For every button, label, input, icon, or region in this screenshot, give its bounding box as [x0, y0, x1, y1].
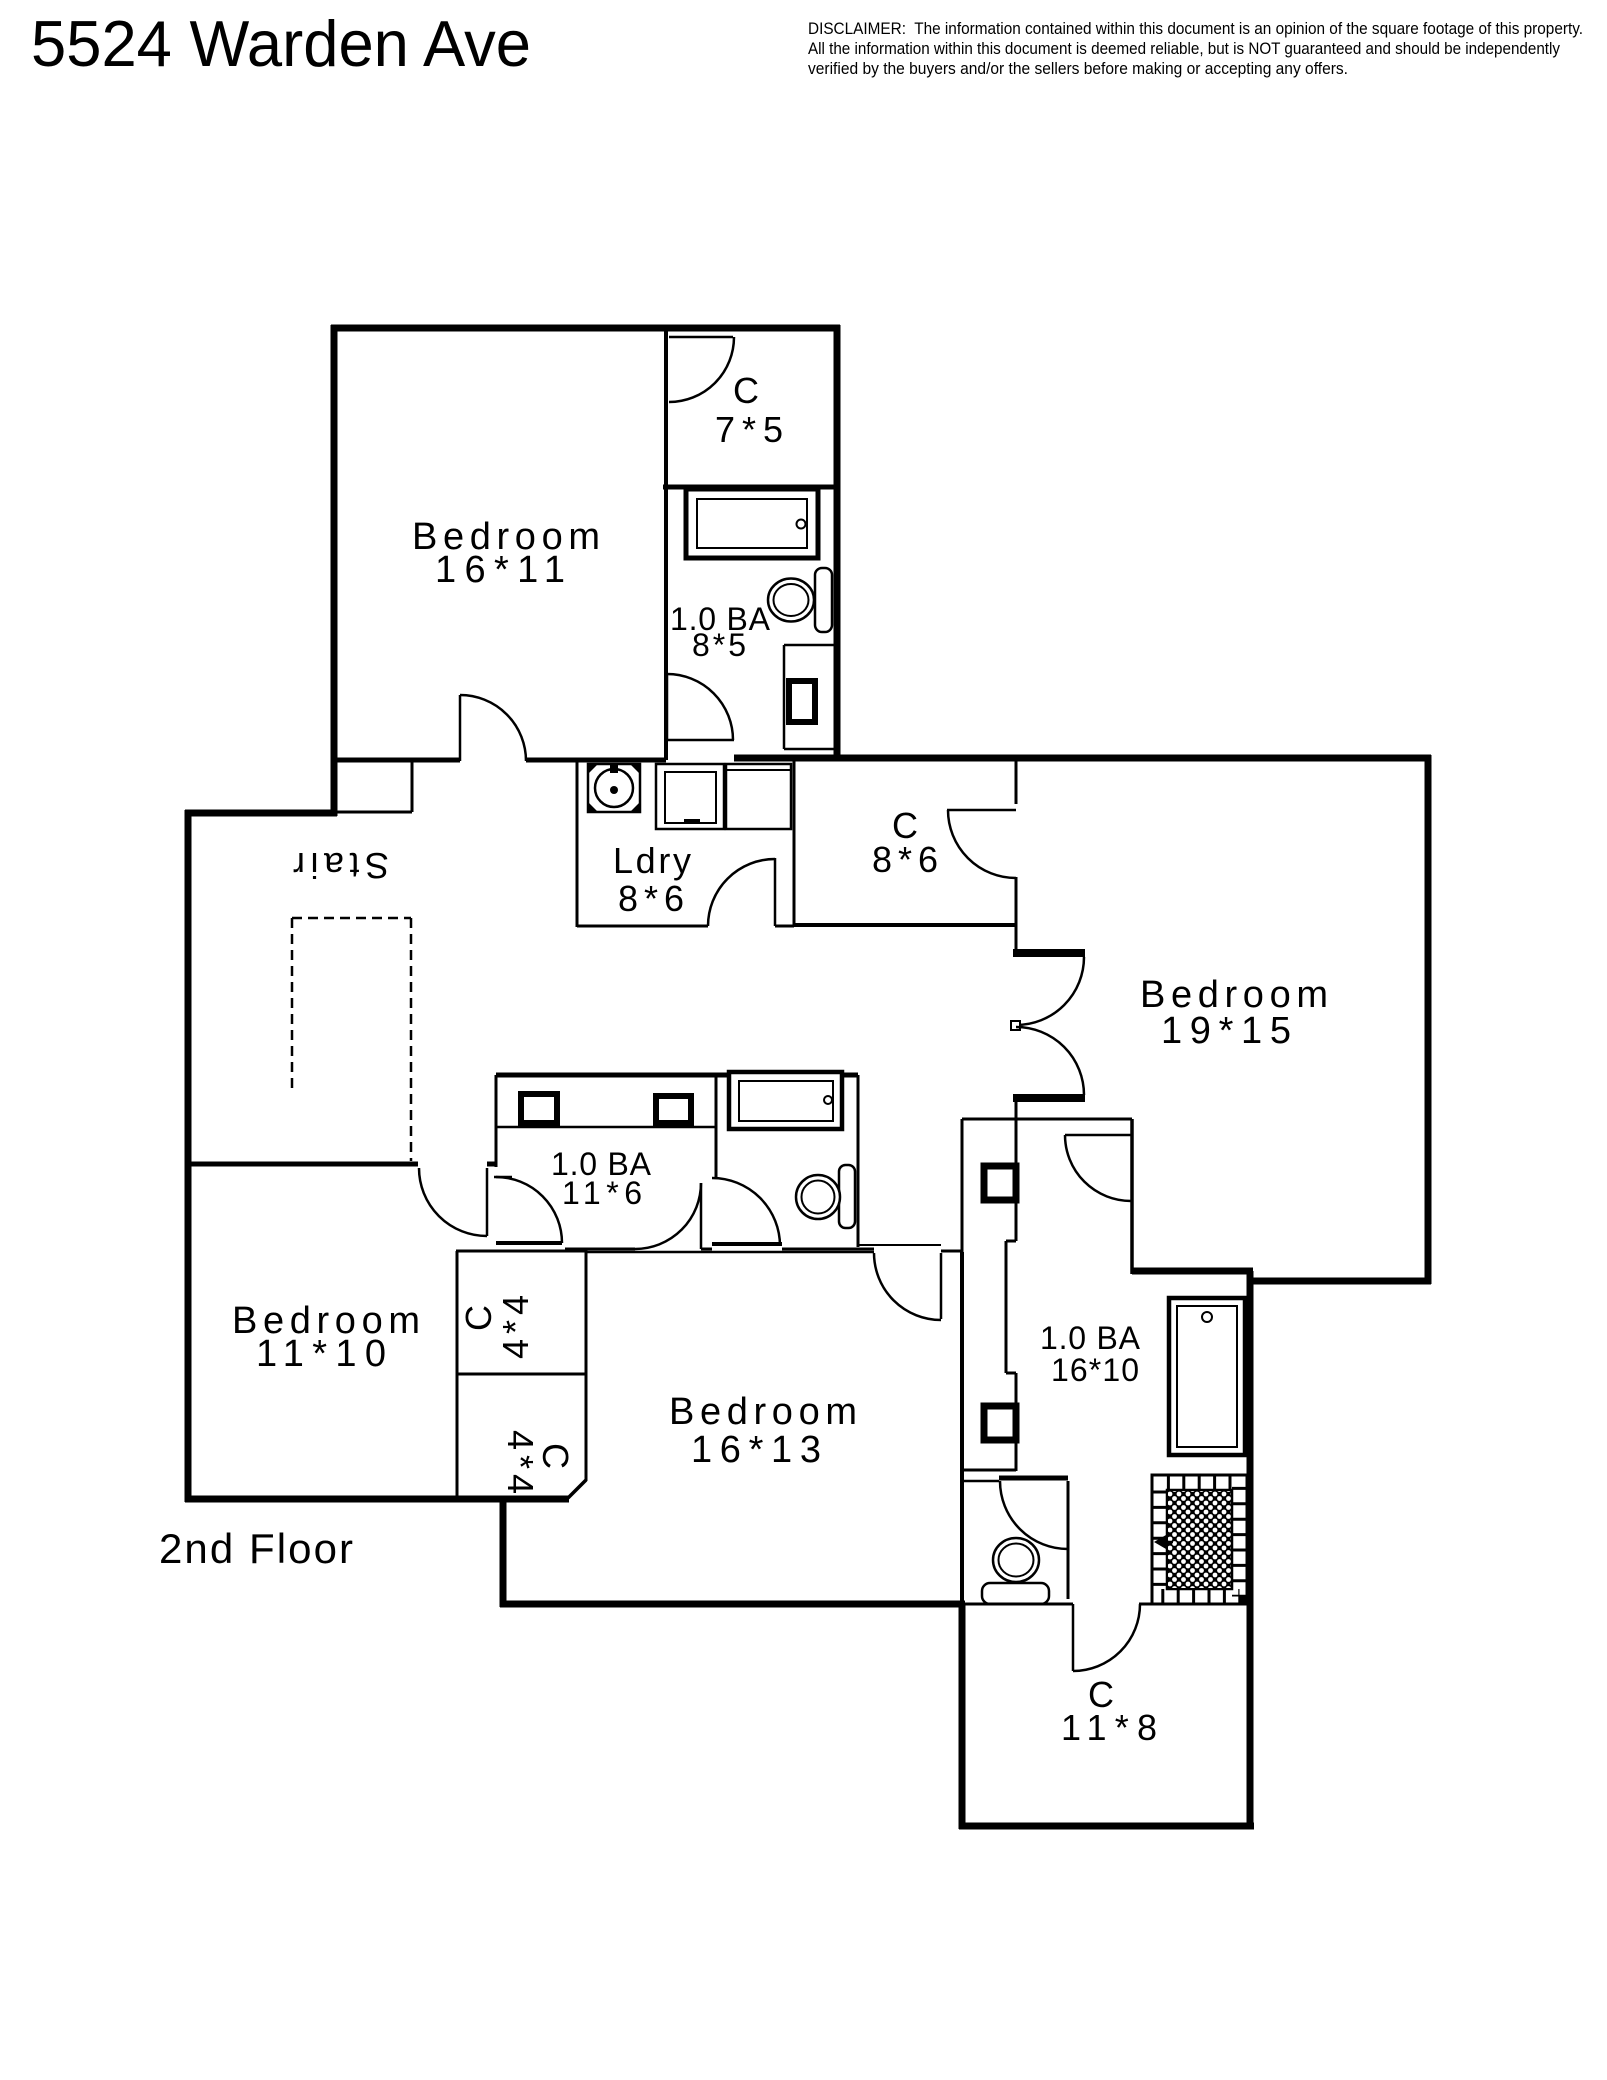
svg-text:16*13: 16*13	[691, 1429, 821, 1471]
svg-text:4*4: 4*4	[500, 1430, 541, 1494]
svg-text:19*15: 19*15	[1161, 1010, 1291, 1052]
svg-text:8*6: 8*6	[618, 878, 684, 919]
svg-text:1.0 BA: 1.0 BA	[1040, 1320, 1141, 1356]
svg-text:4*4: 4*4	[495, 1295, 536, 1359]
svg-text:16*10: 16*10	[1051, 1352, 1139, 1388]
svg-text:verified by the buyers and/or: verified by the buyers and/or the seller…	[808, 59, 1348, 78]
svg-text:7*5: 7*5	[715, 409, 783, 450]
svg-text:C: C	[458, 1305, 499, 1331]
svg-text:C: C	[733, 370, 759, 411]
svg-text:2nd Floor: 2nd Floor	[159, 1525, 353, 1572]
svg-text:8*5: 8*5	[692, 627, 746, 663]
svg-text:16*11: 16*11	[435, 549, 565, 591]
svg-text:5524 Warden Ave: 5524 Warden Ave	[31, 7, 531, 80]
svg-text:Ldry: Ldry	[613, 840, 691, 881]
svg-text:All the information within thi: All the information within this document…	[808, 39, 1561, 58]
svg-text:DISCLAIMER: The information c: DISCLAIMER: The information contained wi…	[808, 19, 1583, 38]
svg-text:8*6: 8*6	[872, 839, 938, 880]
